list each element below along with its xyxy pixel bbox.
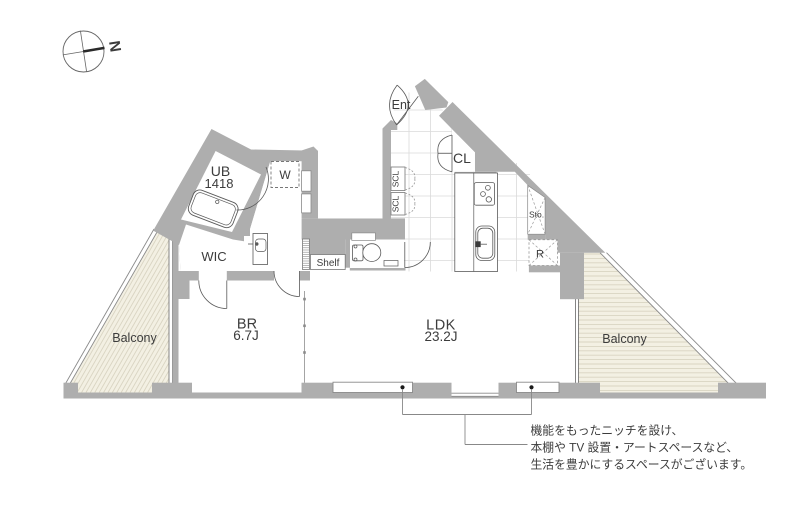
svg-text:R: R: [536, 249, 544, 261]
svg-text:WIC: WIC: [201, 249, 226, 264]
svg-text:Sto.: Sto.: [529, 210, 544, 220]
svg-text:CL: CL: [453, 150, 471, 166]
svg-text:SCL: SCL: [391, 195, 401, 212]
svg-text:Shelf: Shelf: [317, 258, 340, 269]
svg-text:生活を豊かにするスペースがございます。: 生活を豊かにするスペースがございます。: [531, 458, 753, 472]
svg-text:本棚や TV 設置・アートスペースなど、: 本棚や TV 設置・アートスペースなど、: [531, 441, 739, 455]
svg-text:Balcony: Balcony: [602, 332, 647, 346]
svg-text:6.7J: 6.7J: [233, 328, 259, 343]
svg-text:機能をもったニッチを設け、: 機能をもったニッチを設け、: [531, 424, 684, 438]
svg-text:W: W: [279, 168, 291, 182]
svg-text:Ent: Ent: [392, 98, 411, 112]
svg-text:SCL: SCL: [391, 170, 401, 187]
svg-text:23.2J: 23.2J: [424, 329, 457, 344]
svg-text:Balcony: Balcony: [112, 331, 157, 345]
svg-text:1418: 1418: [205, 176, 234, 191]
